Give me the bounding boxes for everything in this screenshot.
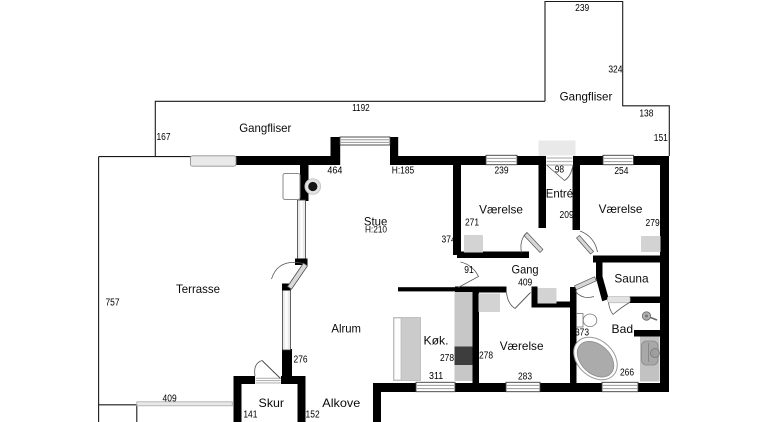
- svg-text:Værelse: Værelse: [479, 203, 523, 217]
- svg-text:324: 324: [608, 64, 622, 75]
- svg-text:278: 278: [440, 353, 454, 364]
- svg-text:H:210: H:210: [365, 225, 387, 235]
- svg-text:271: 271: [465, 217, 479, 228]
- svg-text:409: 409: [518, 278, 532, 289]
- svg-text:464: 464: [327, 166, 342, 177]
- svg-text:209: 209: [560, 210, 574, 221]
- svg-text:141: 141: [243, 410, 257, 421]
- svg-text:Gangfliser: Gangfliser: [560, 90, 613, 104]
- svg-text:409: 409: [163, 393, 177, 404]
- svg-text:283: 283: [518, 371, 532, 382]
- svg-text:254: 254: [614, 166, 628, 177]
- svg-text:279: 279: [646, 218, 660, 229]
- svg-text:374: 374: [442, 235, 456, 246]
- svg-text:Alrum: Alrum: [331, 322, 361, 336]
- svg-text:98: 98: [555, 164, 565, 175]
- svg-text:276: 276: [294, 355, 308, 366]
- svg-text:239: 239: [575, 3, 589, 14]
- svg-text:266: 266: [620, 368, 634, 379]
- svg-text:239: 239: [494, 166, 508, 177]
- svg-text:Alkove: Alkove: [322, 396, 360, 410]
- svg-text:Gangfliser: Gangfliser: [239, 121, 291, 135]
- svg-text:373: 373: [575, 328, 589, 339]
- svg-text:151: 151: [654, 133, 668, 144]
- svg-text:1192: 1192: [352, 103, 370, 114]
- svg-text:757: 757: [105, 298, 119, 309]
- svg-text:91: 91: [464, 265, 474, 276]
- svg-text:152: 152: [306, 410, 320, 421]
- svg-text:Terrasse: Terrasse: [176, 282, 220, 296]
- svg-text:138: 138: [639, 108, 653, 119]
- svg-text:Bad: Bad: [612, 322, 634, 336]
- svg-text:H:185: H:185: [392, 166, 415, 177]
- svg-text:167: 167: [156, 132, 170, 143]
- svg-text:Værelse: Værelse: [599, 202, 643, 216]
- svg-text:Værelse: Værelse: [500, 339, 544, 353]
- svg-text:311: 311: [429, 371, 443, 382]
- svg-text:Sauna: Sauna: [614, 272, 649, 286]
- svg-text:278: 278: [479, 350, 493, 361]
- svg-text:Gang: Gang: [512, 263, 539, 277]
- svg-text:Entré: Entré: [546, 187, 574, 201]
- svg-text:Køk.: Køk.: [424, 334, 449, 348]
- svg-text:Skur: Skur: [259, 396, 285, 410]
